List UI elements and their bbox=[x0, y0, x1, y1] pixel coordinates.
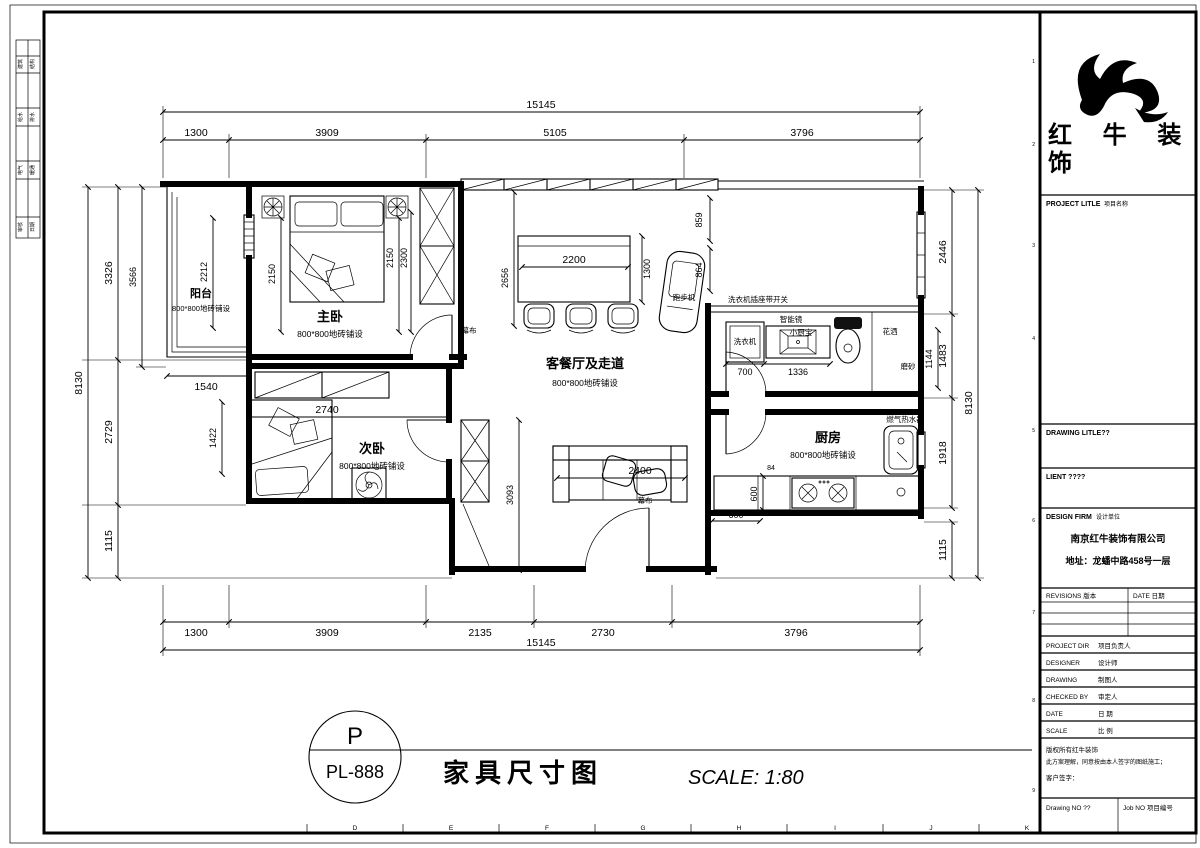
strip-cell: 排水 bbox=[29, 112, 36, 122]
design-firm-label-cn: 设计单位 bbox=[1096, 513, 1120, 521]
dim-kitchen-a: 84 bbox=[767, 465, 775, 472]
label-curtain-2: 幕布 bbox=[638, 495, 653, 505]
row-scale-cn: 比 例 bbox=[1098, 726, 1113, 735]
stamp-number: PL-888 bbox=[326, 762, 384, 782]
strip-cell: 审核 bbox=[17, 222, 24, 232]
dim-right-2: 1483 bbox=[937, 344, 949, 368]
drawing-sheet: 建筑 结构 给水 排水 电气 暖通 审核 日期 D E F G H I J K … bbox=[0, 0, 1200, 848]
label-shower: 花洒 bbox=[883, 326, 898, 336]
title-block: 红 牛 装 饰 PROJECT LITLE 项目名称 DRAWING LITLE… bbox=[1040, 54, 1196, 833]
dining-table bbox=[518, 236, 630, 302]
hallway-closet bbox=[461, 420, 489, 566]
strip-cell: 给水 bbox=[17, 112, 24, 122]
strip-cell: 结构 bbox=[29, 59, 36, 69]
room-living-floor: 800*800地砖铺设 bbox=[552, 378, 618, 388]
dim-kitchen-c: 600 bbox=[728, 510, 743, 520]
dim-bottom-3: 2135 bbox=[468, 627, 492, 639]
dim-top-total: 15145 bbox=[526, 99, 555, 111]
label-treadmill: 跑步机 bbox=[673, 292, 696, 302]
drawing-scale: SCALE: 1:80 bbox=[688, 767, 804, 789]
treadmill bbox=[658, 250, 707, 335]
dim-left-1-inner: 3566 bbox=[128, 267, 138, 287]
dim-bottom-2: 3909 bbox=[315, 627, 339, 639]
row-project-dir-en: PROJECT DIR bbox=[1046, 643, 1090, 650]
dim-right-1: 2446 bbox=[937, 240, 949, 264]
room-balcony-floor: 800*800地砖铺设 bbox=[172, 303, 230, 313]
client-label: LIENT ???? bbox=[1046, 474, 1085, 481]
ruler-number: 7 bbox=[1032, 610, 1035, 616]
ruler-letter: H bbox=[737, 825, 742, 832]
dining-chairs bbox=[524, 304, 638, 333]
room-kitchen: 厨房 bbox=[815, 430, 841, 445]
row-drawing-cn: 制图人 bbox=[1098, 675, 1118, 684]
stamp-letter: P bbox=[347, 723, 363, 750]
date-label: DATE 日期 bbox=[1133, 592, 1165, 600]
toilet bbox=[834, 317, 862, 363]
copyright-line2: 此方案理解，同意按由本人签字的图纸施工； bbox=[1046, 758, 1166, 766]
room-second-floor: 800*800地砖铺设 bbox=[339, 461, 405, 471]
dim-living-depth: 2656 bbox=[500, 268, 510, 288]
row-date-cn: 日 期 bbox=[1098, 710, 1113, 718]
room-kitchen-floor: 800*800地砖铺设 bbox=[790, 450, 856, 460]
label-small-heater: 小厨宝 bbox=[790, 327, 813, 337]
row-designer-cn: 设计师 bbox=[1098, 658, 1118, 667]
dim-tread-a: 859 bbox=[694, 212, 704, 227]
strip-cell: 建筑 bbox=[17, 59, 24, 69]
room-master-floor: 800*800地砖铺设 bbox=[297, 329, 363, 339]
dim-bottom-1: 1300 bbox=[184, 627, 208, 639]
dim-top-1: 1300 bbox=[184, 127, 208, 139]
dim-kitchen-b: 600 bbox=[749, 486, 759, 501]
row-checked-en: CHECKED BY bbox=[1046, 694, 1089, 701]
drawing-title-label: DRAWING LITLE?? bbox=[1046, 430, 1110, 437]
kitchen-door bbox=[726, 412, 766, 454]
ruler-letter: G bbox=[640, 825, 645, 832]
master-nightstand-left bbox=[262, 196, 284, 218]
room-master: 主卧 bbox=[317, 309, 343, 324]
dim-hall-h: 3093 bbox=[505, 485, 515, 505]
ruler-number: 1 bbox=[1032, 59, 1035, 65]
strip-cell: 电气 bbox=[17, 165, 24, 175]
dim-right-4: 1115 bbox=[937, 539, 949, 561]
strip-cell: 暖通 bbox=[29, 165, 36, 175]
dim-top-3: 5105 bbox=[543, 127, 567, 139]
dim-table-h: 1300 bbox=[642, 259, 652, 279]
shoe-cabinet-diagonal bbox=[463, 504, 489, 566]
kitchen-counter bbox=[714, 476, 922, 510]
label-curtain-1: 幕布 bbox=[462, 325, 477, 335]
drawing-title: 家具尺寸图 bbox=[443, 758, 603, 788]
row-project-dir-cn: 项目负责人 bbox=[1098, 641, 1131, 650]
dim-balcony-w: 1540 bbox=[194, 381, 218, 393]
sofa bbox=[553, 446, 687, 502]
label-gas-heater: 燃气热水器 bbox=[886, 414, 924, 424]
dim-master-right: 2150 bbox=[385, 248, 395, 268]
project-title-label-cn: 项目名称 bbox=[1104, 200, 1128, 208]
dim-bottom-4: 2730 bbox=[591, 627, 615, 639]
master-bed bbox=[290, 196, 384, 302]
master-door bbox=[410, 315, 452, 357]
dim-sofa-w: 2400 bbox=[628, 465, 652, 477]
signature-strip: 建筑 结构 给水 排水 电气 暖通 审核 日期 bbox=[16, 40, 40, 238]
label-frosted: 磨砂 bbox=[901, 361, 916, 371]
ruler-letter: E bbox=[449, 825, 454, 832]
dim-master-right2: 2300 bbox=[399, 248, 409, 268]
dim-bed2-left: 1422 bbox=[208, 428, 218, 448]
ruler-number: 8 bbox=[1032, 698, 1035, 704]
bull-logo bbox=[1078, 54, 1159, 116]
dim-balcony-h: 2212 bbox=[199, 262, 209, 282]
copyright-line3: 客户签字： bbox=[1046, 773, 1079, 782]
kitchen-sink bbox=[884, 426, 918, 474]
dim-left-1: 3326 bbox=[103, 261, 115, 285]
dim-bed2-w: 2740 bbox=[315, 404, 339, 416]
balcony-window bbox=[244, 215, 254, 258]
right-ruler: 1 2 3 4 5 6 7 8 9 bbox=[1032, 59, 1035, 794]
design-firm-label: DESIGN FIRM bbox=[1046, 514, 1092, 521]
entrance-door bbox=[585, 508, 649, 572]
floor-plan-canvas: 建筑 结构 给水 排水 电气 暖通 审核 日期 D E F G H I J K … bbox=[0, 0, 1200, 848]
project-title-label: PROJECT LITLE bbox=[1046, 201, 1101, 208]
row-checked-cn: 审定人 bbox=[1098, 692, 1118, 701]
firm-name: 南京红牛装饰有限公司 bbox=[1070, 533, 1165, 545]
dim-master-left: 2150 bbox=[267, 264, 277, 284]
ruler-letter: F bbox=[545, 825, 549, 832]
room-balcony: 阳台 bbox=[190, 286, 212, 300]
floor-drain bbox=[897, 488, 905, 496]
row-scale-en: SCALE bbox=[1046, 728, 1068, 735]
copyright-line1: 版权所有红牛装饰 bbox=[1046, 745, 1099, 754]
dim-left-total: 8130 bbox=[73, 371, 85, 395]
dim-bath-a: 700 bbox=[737, 367, 752, 377]
brand-name-line2: 饰 bbox=[1048, 150, 1084, 177]
dim-top-4: 3796 bbox=[790, 127, 814, 139]
ruler-number: 6 bbox=[1032, 518, 1035, 524]
dim-right-3: 1918 bbox=[937, 441, 949, 465]
drawing-no-label: Drawing NO ?? bbox=[1046, 805, 1091, 812]
drawing-footer: P PL-888 家具尺寸图 SCALE: 1:80 bbox=[309, 711, 1032, 803]
label-washer: 洗衣机 bbox=[734, 336, 757, 346]
dim-tread-b: 864 bbox=[694, 262, 704, 277]
room-second: 次卧 bbox=[359, 441, 385, 456]
walls bbox=[163, 184, 921, 572]
master-nightstand-right bbox=[386, 196, 408, 218]
ruler-number: 5 bbox=[1032, 428, 1035, 434]
ruler-number: 3 bbox=[1032, 243, 1035, 249]
ruler-number: 9 bbox=[1032, 788, 1035, 794]
windows bbox=[244, 179, 925, 468]
ruler-number: 2 bbox=[1032, 142, 1035, 148]
dim-bottom-5: 3796 bbox=[784, 627, 808, 639]
ruler-letter: K bbox=[1025, 825, 1030, 832]
dim-left-3: 1115 bbox=[103, 530, 115, 552]
revisions-label: REVISIONS 版本 bbox=[1046, 591, 1097, 600]
master-wardrobe bbox=[420, 188, 454, 304]
row-drawing-en: DRAWING bbox=[1046, 677, 1077, 684]
dim-right-total: 8130 bbox=[963, 391, 975, 415]
label-smart-mirror: 智能镜 bbox=[780, 314, 803, 324]
floor-fan bbox=[352, 468, 386, 502]
dim-table-w: 2200 bbox=[562, 254, 586, 266]
strip-cell: 日期 bbox=[30, 222, 36, 232]
dim-top-2: 3909 bbox=[315, 127, 339, 139]
dim-left-2: 2729 bbox=[103, 420, 115, 444]
ruler-number: 4 bbox=[1032, 336, 1035, 342]
row-date-en: DATE bbox=[1046, 711, 1064, 718]
dim-bottom-total: 15145 bbox=[526, 637, 555, 649]
label-washer-socket: 洗衣机插座带开关 bbox=[728, 294, 788, 304]
ruler-letter: D bbox=[353, 825, 358, 832]
bedroom-divider-closet bbox=[255, 372, 389, 398]
room-living: 客餐厅及走道 bbox=[546, 356, 624, 371]
dim-bath-b: 1336 bbox=[788, 367, 808, 377]
job-no-label: Job NO 项目编号 bbox=[1123, 803, 1173, 812]
ruler-letter: J bbox=[929, 825, 932, 832]
dim-bath-side: 1144 bbox=[924, 349, 934, 368]
brand-name-line1: 红 牛 装 bbox=[1048, 121, 1193, 149]
ruler-letter: I bbox=[834, 825, 836, 832]
row-designer-en: DESIGNER bbox=[1046, 660, 1080, 667]
firm-address: 地址：龙蟠中路458号一层 bbox=[1065, 555, 1170, 566]
stove bbox=[792, 478, 854, 508]
second-bedroom-door bbox=[407, 420, 449, 462]
